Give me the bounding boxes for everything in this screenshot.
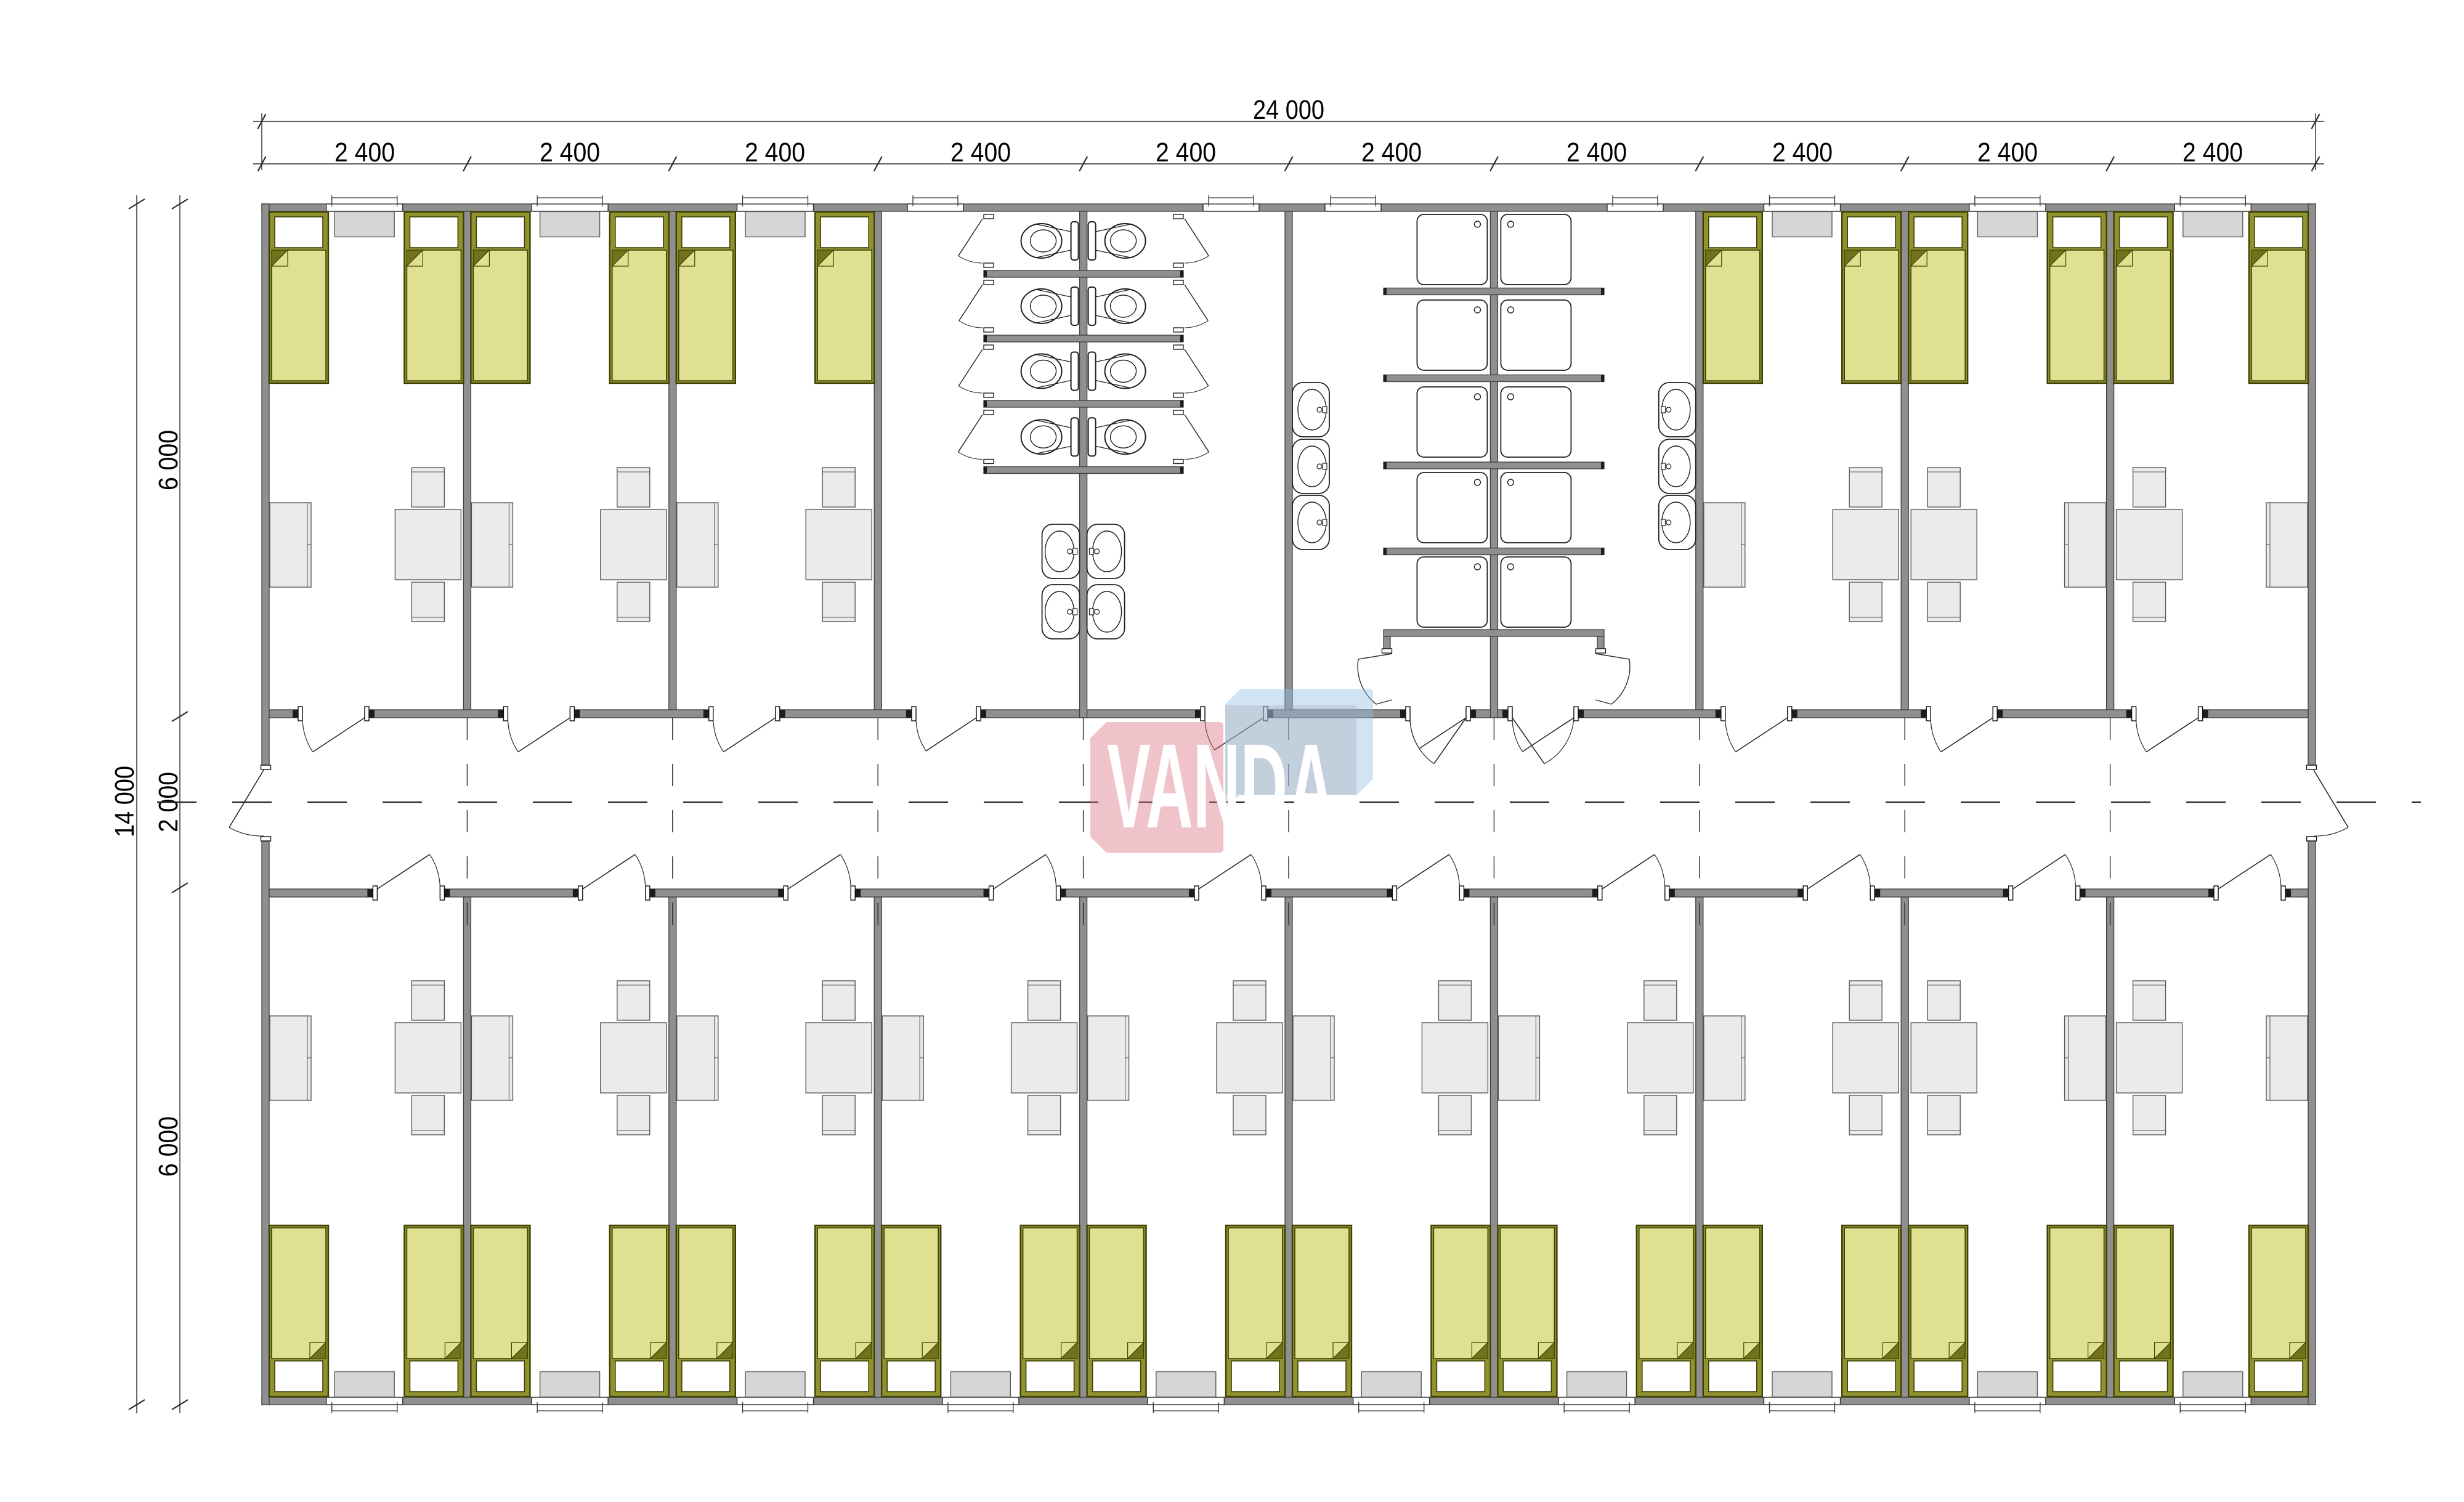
svg-text:2 400: 2 400: [1156, 137, 1216, 168]
svg-text:2 400: 2 400: [745, 137, 805, 168]
svg-text:2 400: 2 400: [2182, 137, 2243, 168]
svg-text:2 400: 2 400: [334, 137, 395, 168]
svg-text:VANDA: VANDA: [1107, 720, 1335, 853]
svg-text:6 000: 6 000: [153, 430, 184, 490]
svg-text:2 400: 2 400: [1566, 137, 1627, 168]
svg-text:2 400: 2 400: [950, 137, 1011, 168]
svg-text:24 000: 24 000: [1253, 95, 1324, 125]
svg-text:2 400: 2 400: [540, 137, 600, 168]
svg-text:2 400: 2 400: [1772, 137, 1833, 168]
svg-text:2 400: 2 400: [1977, 137, 2038, 168]
svg-text:2 400: 2 400: [1361, 137, 1422, 168]
svg-text:14 000: 14 000: [110, 766, 140, 837]
svg-text:6 000: 6 000: [153, 1116, 184, 1177]
